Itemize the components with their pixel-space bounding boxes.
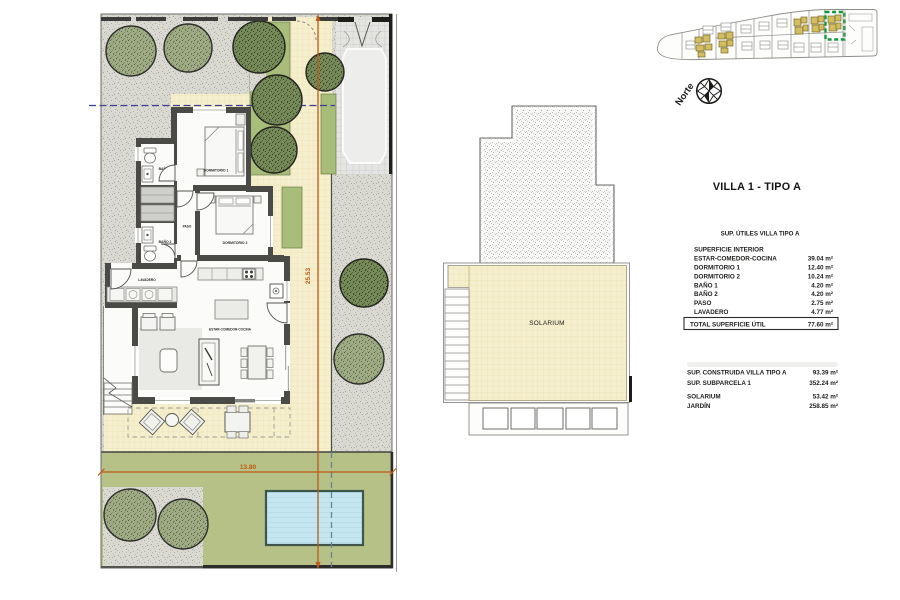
svg-text:DORMITORIO 1: DORMITORIO 1 [694,265,741,272]
svg-text:4.20 m²: 4.20 m² [811,283,833,290]
svg-text:ESTAR-COMEDOR-COCINA: ESTAR-COMEDOR-COCINA [694,256,777,263]
svg-text:258.85 m²: 258.85 m² [809,403,838,410]
svg-text:VILLA 1 - TIPO A: VILLA 1 - TIPO A [713,181,801,193]
svg-text:BAÑO 2: BAÑO 2 [159,239,172,244]
svg-text:ESTAR-COMEDOR-COCINA: ESTAR-COMEDOR-COCINA [209,328,252,332]
svg-text:13.80: 13.80 [240,464,257,471]
svg-text:SUP. CONSTRUIDA VILLA TIPO A: SUP. CONSTRUIDA VILLA TIPO A [687,370,787,377]
svg-text:SUP. ÚTILES VILLA TIPO A: SUP. ÚTILES VILLA TIPO A [721,231,800,238]
svg-text:2.75 m²: 2.75 m² [811,300,833,307]
svg-text:77.60 m²: 77.60 m² [808,321,833,328]
svg-text:4.20 m²: 4.20 m² [811,291,833,298]
svg-text:4.77 m²: 4.77 m² [811,309,833,316]
svg-text:53.42 m²: 53.42 m² [813,394,838,401]
svg-text:BAÑO 1: BAÑO 1 [694,281,718,290]
svg-text:PASO: PASO [694,300,711,307]
svg-text:DORMITORIO 2: DORMITORIO 2 [223,241,248,245]
svg-text:LAVADERO: LAVADERO [138,278,156,282]
svg-text:12.40 m²: 12.40 m² [808,265,833,272]
svg-text:LAVADERO: LAVADERO [694,309,729,316]
svg-text:TOTAL SUPERFICIE ÚTIL: TOTAL SUPERFICIE ÚTIL [690,319,766,328]
svg-text:25.53: 25.53 [305,267,312,284]
svg-text:DORMITORIO 1: DORMITORIO 1 [204,169,229,173]
svg-text:JARDÍN: JARDÍN [687,401,711,410]
svg-text:SOLARIUM: SOLARIUM [529,320,565,327]
svg-text:SUPERFICIE INTERIOR: SUPERFICIE INTERIOR [694,247,764,254]
svg-text:DORMITORIO 2: DORMITORIO 2 [694,273,741,280]
svg-text:39.04 m²: 39.04 m² [808,256,833,263]
svg-text:BAÑO 2: BAÑO 2 [694,289,718,298]
svg-text:93.39 m²: 93.39 m² [813,370,838,377]
svg-text:SOLARIUM: SOLARIUM [687,394,721,401]
svg-text:352.24 m²: 352.24 m² [809,380,838,387]
svg-text:PASO: PASO [183,225,192,229]
svg-text:SUP. SUBPARCELA 1: SUP. SUBPARCELA 1 [687,380,751,387]
svg-text:10.24 m²: 10.24 m² [808,273,833,280]
